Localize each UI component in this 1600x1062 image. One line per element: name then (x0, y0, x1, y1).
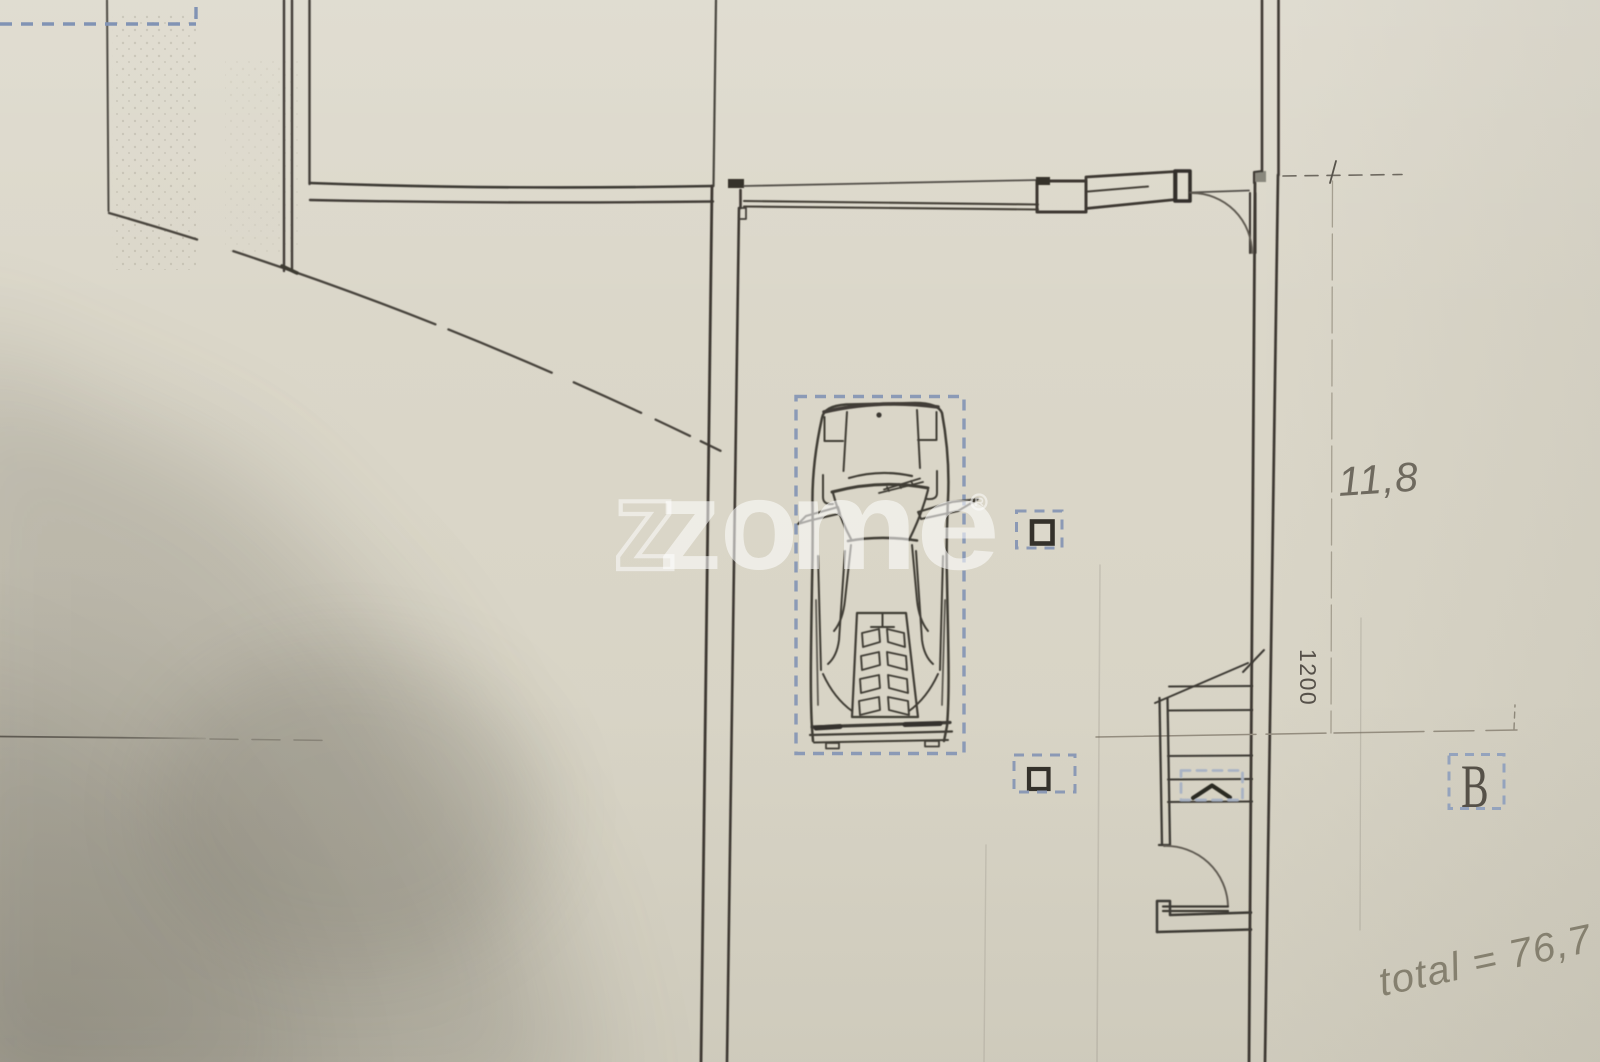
svg-text:B: B (1461, 754, 1489, 821)
svg-text:m: m (789, 453, 918, 596)
svg-text:e: e (916, 453, 1000, 597)
svg-text:11,8: 11,8 (1336, 453, 1420, 505)
svg-text:1200: 1200 (1295, 649, 1321, 706)
svg-text:zo: zo (658, 454, 796, 597)
